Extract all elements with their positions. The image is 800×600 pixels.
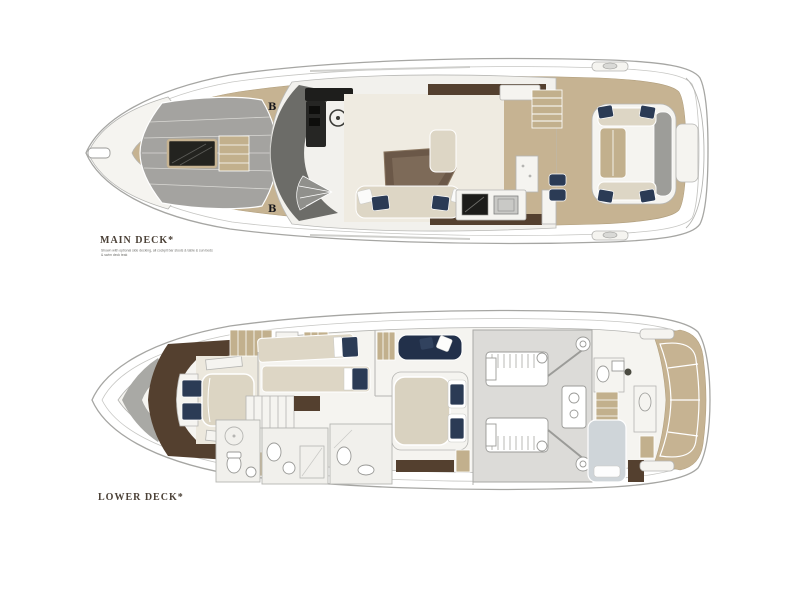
master-cabinet <box>396 460 454 472</box>
bar-stool <box>549 189 566 201</box>
settee-pillow-navy <box>639 189 656 203</box>
twin-pillow-navy <box>341 337 358 358</box>
stair-landing <box>294 396 320 411</box>
aft-locker <box>640 436 654 458</box>
lower-deck-plan <box>92 311 710 490</box>
vip-pillow-navy <box>182 403 202 420</box>
main-deck-note-1: Shown with optional side decking, all co… <box>101 249 213 253</box>
settee-pillow-navy <box>597 105 614 119</box>
sofa-pillow-navy <box>431 195 450 211</box>
master-locker <box>456 450 470 472</box>
plant <box>625 369 632 376</box>
aft-teak-floor <box>596 392 618 424</box>
bollard-marker-top: B <box>268 102 276 113</box>
sink <box>612 361 624 371</box>
master-wardrobe <box>377 332 395 360</box>
master-pillow-navy <box>450 384 464 405</box>
main-deck-plan: B B <box>86 59 708 244</box>
flybridge-stairs <box>532 90 562 128</box>
sink <box>283 462 295 474</box>
helm-display <box>309 118 320 126</box>
salon-chaise <box>430 130 456 172</box>
anchor-roller <box>88 148 110 158</box>
main-deck-note-2: & swim deck teak <box>101 253 128 257</box>
toilet <box>337 447 351 465</box>
bollard-marker-bottom: B <box>268 204 276 215</box>
aft-pillow <box>594 466 620 477</box>
main-deck-label: MAIN DECK* <box>100 235 174 246</box>
helm-display <box>309 106 320 114</box>
twin-pillow <box>333 337 342 357</box>
floorplan-canvas: B B <box>0 0 800 600</box>
settee-backrest <box>654 112 672 196</box>
generator <box>562 386 586 428</box>
steering-wheel-hub <box>336 116 340 120</box>
galley-island <box>516 156 538 192</box>
vip-pillow-navy <box>182 380 202 397</box>
sink <box>358 465 374 475</box>
lower-deck-label: LOWER DECK* <box>98 492 184 503</box>
foredeck-skylight <box>168 140 216 167</box>
transom-gate <box>676 124 698 182</box>
toilet <box>597 366 609 382</box>
twin-pillow-navy <box>352 368 368 390</box>
galley-sink <box>494 196 518 214</box>
sofa-pillow-navy <box>371 195 390 211</box>
master-pillow-navy <box>450 418 464 439</box>
settee-pillow-navy <box>639 105 656 119</box>
engine-room <box>473 330 592 482</box>
master-bathroom <box>330 424 392 484</box>
cleat <box>603 232 617 238</box>
platform-hatch <box>640 461 674 471</box>
bar-stool <box>549 174 566 186</box>
vip-bathroom <box>216 420 260 482</box>
twin-pillow <box>344 368 352 390</box>
bow-teak-step <box>219 136 249 171</box>
master-bed <box>394 377 450 445</box>
toilet <box>267 443 281 461</box>
platform-hatch <box>640 329 674 339</box>
yacht-floorplan-page: B B <box>0 0 800 600</box>
day-bathroom <box>262 428 328 484</box>
master-sofa-pillow-navy <box>419 337 434 350</box>
sink <box>246 467 256 477</box>
settee-pillow-navy <box>597 189 614 203</box>
cleat <box>603 63 617 69</box>
